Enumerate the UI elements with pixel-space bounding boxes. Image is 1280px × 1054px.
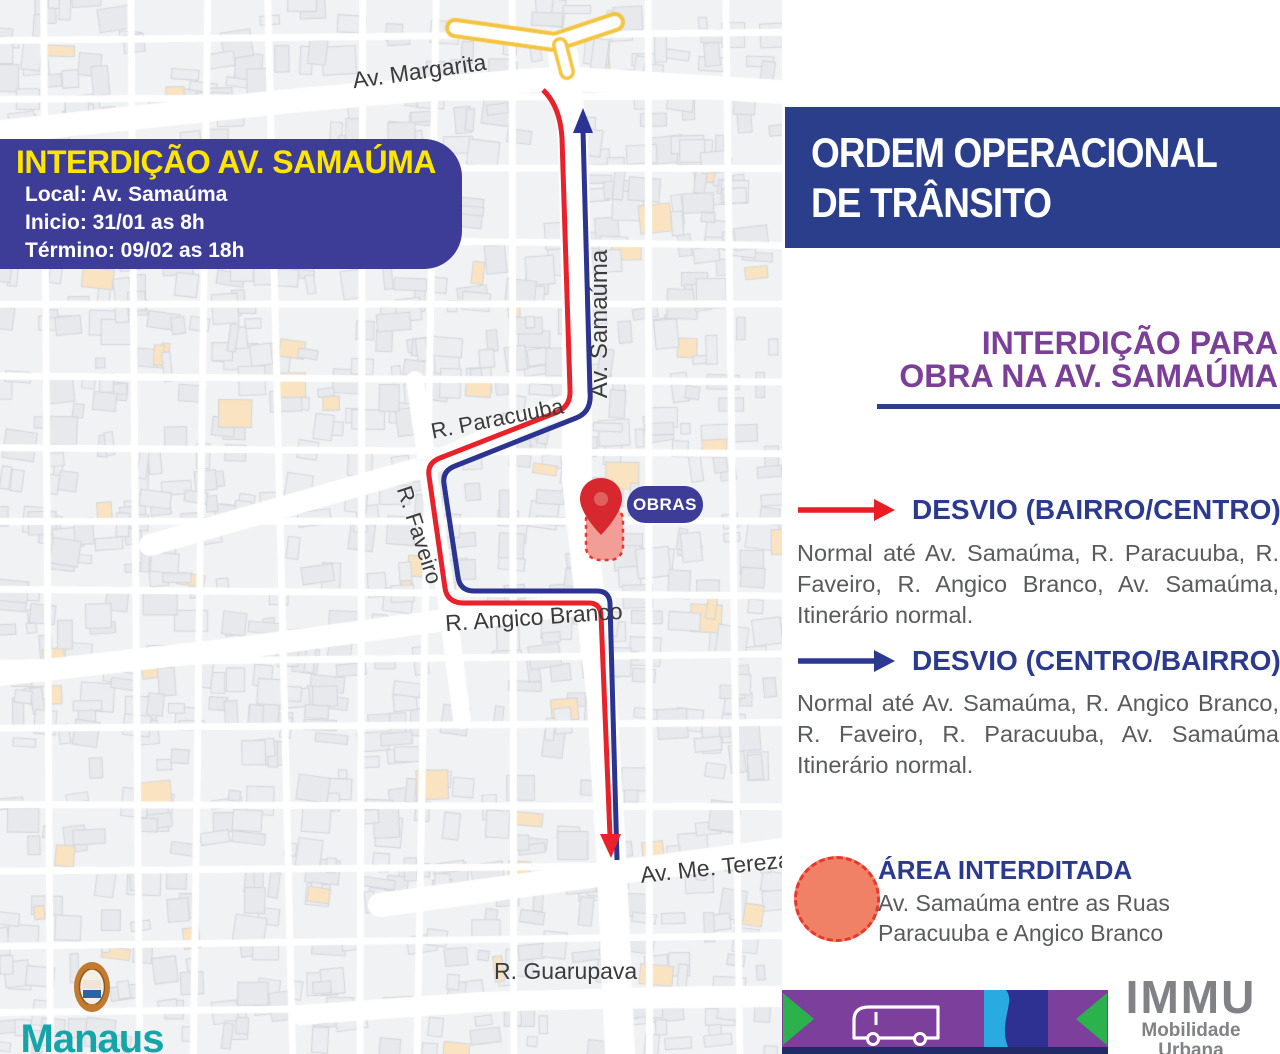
blue-arrow-icon (796, 648, 896, 674)
closed-area-body: Av. Samaúma entre as Ruas Paracuuba e An… (878, 888, 1278, 948)
green-chevron-right-icon (783, 993, 814, 1045)
desvio-centro-bairro-title: DESVIO (CENTRO/BAIRRO) (912, 645, 1280, 677)
immu-wordmark: IMMU (1108, 973, 1274, 1021)
city-map: Av. Margarita Av. Samaúma R. Paracuuba R… (0, 0, 782, 1054)
obras-badge: OBRAS (627, 486, 703, 523)
red-arrow-icon (796, 497, 896, 523)
closed-area-circle-icon (794, 856, 880, 942)
panel-header-line2: DE TRÂNSITO (811, 178, 1224, 228)
desvio-centro-bairro-row: DESVIO (CENTRO/BAIRRO) (796, 645, 1280, 677)
footer-wave-shapes (984, 990, 1048, 1052)
street-label-samauma: Av. Samaúma (586, 244, 614, 404)
blue-route-up-arrow-icon (573, 108, 593, 133)
immu-logo: IMMU Mobilidade Urbana (1108, 973, 1274, 1054)
desvio-bairro-centro-row: DESVIO (BAIRRO/CENTRO) (796, 494, 1280, 526)
closure-end: Término: 09/02 as 18h (16, 237, 452, 265)
panel-header-line1: ORDEM OPERACIONAL (811, 128, 1224, 178)
panel-subtitle: INTERDIÇÃO PARA OBRA NA AV. SAMAÚMA (798, 327, 1278, 393)
closure-location: Local: Av. Samaúma (16, 181, 452, 209)
bus-icon (846, 1000, 950, 1051)
closure-title: INTERDIÇÃO AV. SAMAÚMA (16, 144, 452, 181)
panel-subtitle-line2: OBRA NA AV. SAMAÚMA (798, 360, 1278, 393)
subtitle-underline (877, 404, 1280, 409)
info-panel: ORDEM OPERACIONAL DE TRÂNSITO INTERDIÇÃO… (782, 0, 1280, 1054)
manaus-wordmark: Manaus (12, 1019, 172, 1054)
manaus-logo: Manaus Prefeitura Municipal (12, 960, 172, 1054)
closed-area-title: ÁREA INTERDITADA (878, 855, 1132, 886)
desvio-bairro-centro-body: Normal até Av. Samaúma, R. Paracuuba, R.… (797, 538, 1279, 631)
panel-header: ORDEM OPERACIONAL DE TRÂNSITO (785, 107, 1280, 248)
desvio-centro-bairro-body: Normal até Av. Samaúma, R. Angico Branco… (797, 688, 1279, 781)
immu-subtitle: Mobilidade Urbana (1108, 1021, 1274, 1054)
desvio-bairro-centro-title: DESVIO (BAIRRO/CENTRO) (912, 494, 1280, 526)
manaus-crest-icon (69, 960, 115, 1014)
traffic-operational-order-poster: Av. Margarita Av. Samaúma R. Paracuuba R… (0, 0, 1280, 1054)
street-label-guarupava: R. Guarupava (494, 958, 637, 985)
closure-start: Inicio: 31/01 as 8h (16, 209, 452, 237)
green-chevron-left-icon (1076, 993, 1107, 1045)
panel-subtitle-line1: INTERDIÇÃO PARA (798, 327, 1278, 360)
closure-info-box: INTERDIÇÃO AV. SAMAÚMA Local: Av. Samaúm… (0, 139, 462, 269)
